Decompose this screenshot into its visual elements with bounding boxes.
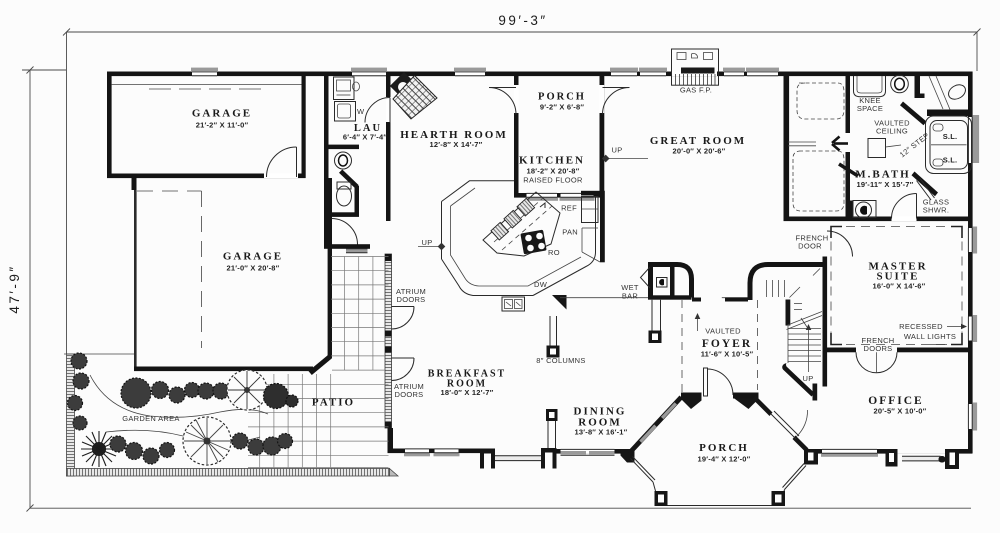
svg-text:RECESSED: RECESSED [899, 322, 943, 331]
svg-text:6′-4″ X 7′-4″: 6′-4″ X 7′-4″ [343, 133, 387, 142]
svg-text:9′-2″ X 6′-8″: 9′-2″ X 6′-8″ [540, 103, 584, 112]
svg-text:DW: DW [534, 280, 548, 289]
svg-text:GARAGE: GARAGE [192, 108, 252, 120]
svg-text:20′-0″ X 20′-6″: 20′-0″ X 20′-6″ [673, 147, 726, 156]
svg-text:GREAT ROOM: GREAT ROOM [650, 135, 746, 147]
svg-text:20′-5″ X 10′-0″: 20′-5″ X 10′-0″ [874, 407, 927, 416]
svg-text:PATIO: PATIO [312, 397, 355, 409]
svg-text:BAR: BAR [622, 292, 639, 301]
svg-text:UP: UP [421, 238, 432, 247]
svg-text:16′-0″ X 14′-6″: 16′-0″ X 14′-6″ [873, 282, 926, 291]
svg-text:S.L.: S.L. [943, 156, 958, 165]
svg-text:PORCH: PORCH [699, 442, 749, 454]
svg-text:8″ COLUMNS: 8″ COLUMNS [536, 356, 585, 365]
svg-text:SHWR.: SHWR. [923, 206, 950, 215]
svg-text:13′-8″ X 16′-1″: 13′-8″ X 16′-1″ [575, 428, 628, 437]
svg-text:FOYER: FOYER [702, 338, 752, 350]
svg-text:19′-11″ X 15′-7″: 19′-11″ X 15′-7″ [857, 180, 914, 189]
svg-text:RO: RO [548, 248, 560, 257]
svg-text:KITCHEN: KITCHEN [519, 155, 585, 167]
svg-text:GARDEN AREA: GARDEN AREA [122, 414, 179, 423]
svg-text:M.BATH: M.BATH [855, 169, 911, 181]
svg-text:DOORS: DOORS [396, 295, 425, 304]
svg-text:CEILING: CEILING [876, 127, 908, 136]
svg-text:GARAGE: GARAGE [223, 251, 283, 263]
svg-text:WALL LIGHTS: WALL LIGHTS [904, 332, 956, 341]
svg-text:99′-3″: 99′-3″ [498, 13, 547, 28]
svg-text:SPACE: SPACE [857, 104, 883, 113]
svg-text:DOORS: DOORS [863, 344, 892, 353]
svg-text:OFFICE: OFFICE [868, 395, 923, 407]
svg-text:W: W [357, 107, 365, 116]
svg-text:REF: REF [561, 204, 577, 213]
svg-text:VAULTED: VAULTED [705, 327, 741, 336]
svg-text:21′-2″ X 11′-0″: 21′-2″ X 11′-0″ [196, 121, 249, 130]
svg-text:PAN: PAN [562, 228, 578, 237]
svg-text:47′-9″: 47′-9″ [7, 264, 22, 313]
svg-text:GAS F.P.: GAS F.P. [680, 86, 712, 95]
svg-text:18′-0″ X 12′-7″: 18′-0″ X 12′-7″ [441, 388, 494, 397]
svg-text:RAISED FLOOR: RAISED FLOOR [523, 176, 583, 185]
svg-text:DOORS: DOORS [394, 390, 423, 399]
svg-text:S.L.: S.L. [943, 132, 958, 141]
svg-text:21′-0″ X 20′-8″: 21′-0″ X 20′-8″ [227, 264, 280, 273]
svg-text:DOOR: DOOR [798, 242, 822, 251]
svg-text:19′-4″ X 12′-0″: 19′-4″ X 12′-0″ [698, 455, 751, 464]
svg-text:UP: UP [611, 146, 622, 155]
svg-text:11′-6″ X 10′-5″: 11′-6″ X 10′-5″ [701, 350, 754, 359]
svg-text:PORCH: PORCH [538, 92, 586, 103]
svg-text:12′-8″ X 14′-7″: 12′-8″ X 14′-7″ [430, 140, 483, 149]
svg-text:UP: UP [802, 374, 813, 383]
svg-text:18′-2″ X 20′-8″: 18′-2″ X 20′-8″ [527, 167, 580, 176]
